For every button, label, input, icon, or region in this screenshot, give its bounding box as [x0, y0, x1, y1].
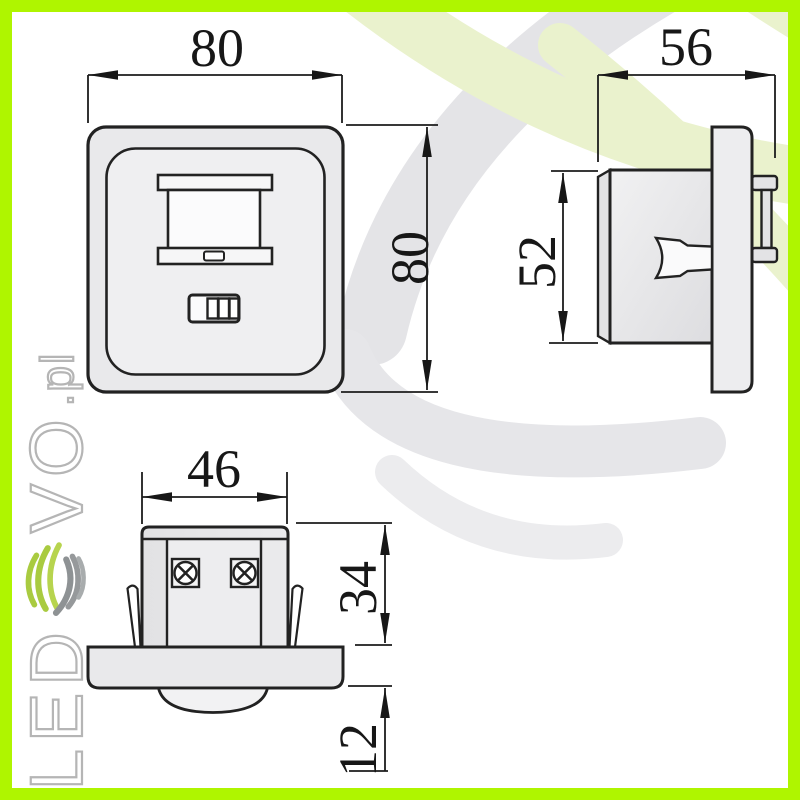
- technical-drawing: 80 80 56: [12, 12, 788, 788]
- claw-top-tab: [752, 176, 777, 190]
- spring-clip-left: [128, 586, 141, 647]
- product-dimension-diagram: LED VO .pl: [0, 0, 800, 800]
- claw-bottom-tab: [752, 248, 777, 262]
- mounting-flange: [88, 647, 343, 688]
- side-back-cover: [598, 170, 610, 343]
- dim-label-side-height: 52: [507, 235, 567, 289]
- dim-front-width: 80: [88, 18, 342, 123]
- terminal-screw: [231, 559, 258, 587]
- terminal-screw: [172, 559, 199, 587]
- dim-label-front-height: 80: [380, 231, 440, 285]
- switch-segment: [230, 299, 239, 319]
- front-view: [88, 127, 343, 392]
- dim-bottom-width: 46: [142, 439, 287, 524]
- sensor-dome-lens: [159, 688, 268, 713]
- indicator-slot: [204, 252, 224, 261]
- pir-sensor-window: [168, 190, 260, 249]
- dim-side-height: 52: [507, 171, 598, 343]
- claw-bar: [762, 190, 772, 248]
- dim-flange-depth: 12: [328, 688, 390, 777]
- spring-clip-right: [290, 586, 303, 647]
- side-view: [598, 127, 777, 392]
- bottom-view: [88, 527, 343, 713]
- switch-segment: [208, 299, 219, 319]
- side-front-plate: [712, 127, 752, 392]
- dim-front-height: 80: [341, 125, 440, 392]
- dim-label-flange-depth: 12: [328, 723, 388, 777]
- dim-label-side-width: 56: [659, 17, 713, 77]
- terminal-face: [167, 539, 261, 647]
- dim-label-bottom-width: 46: [187, 439, 241, 499]
- dim-label-front-width: 80: [190, 18, 244, 78]
- dim-label-recess-depth: 34: [328, 561, 388, 615]
- switch-segment: [219, 299, 230, 319]
- pir-window-top-flange: [158, 175, 272, 190]
